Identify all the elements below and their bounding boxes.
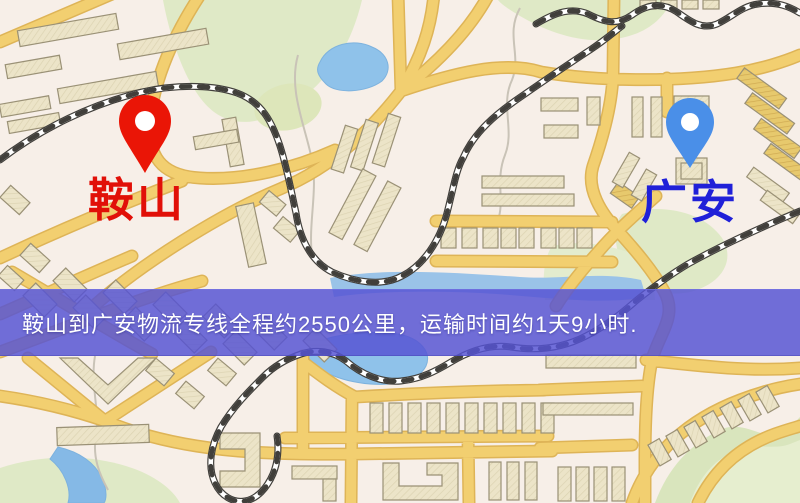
route-info-text: 鞍山到广安物流专线全程约2550公里，运输时间约1天9小时. xyxy=(0,307,638,339)
route-info-banner: 鞍山到广安物流专线全程约2550公里，运输时间约1天9小时. xyxy=(0,289,800,356)
origin-city-label: 鞍山 xyxy=(88,177,186,223)
map-image xyxy=(0,0,800,503)
logistics-map: 鞍山 广安 鞍山到广安物流专线全程约2550公里，运输时间约1天9小时. xyxy=(0,0,800,503)
destination-pin-hole xyxy=(681,113,699,131)
destination-city-label: 广安 xyxy=(641,179,739,225)
origin-pin-hole xyxy=(135,111,155,131)
